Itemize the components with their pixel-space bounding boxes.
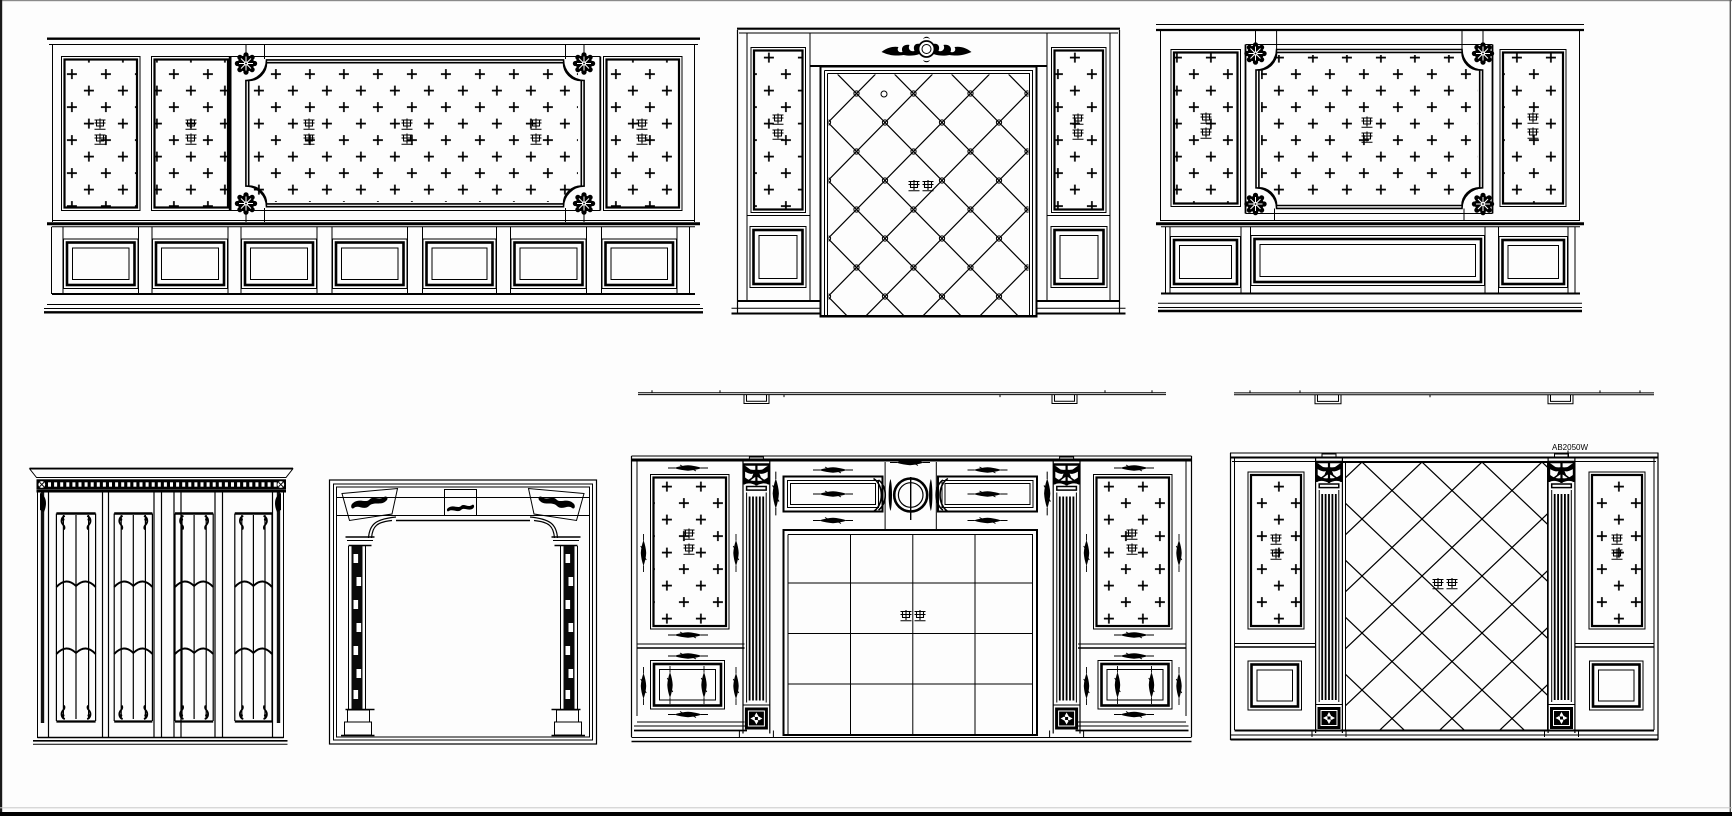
svg-text:AB2050W: AB2050W <box>1552 443 1588 452</box>
